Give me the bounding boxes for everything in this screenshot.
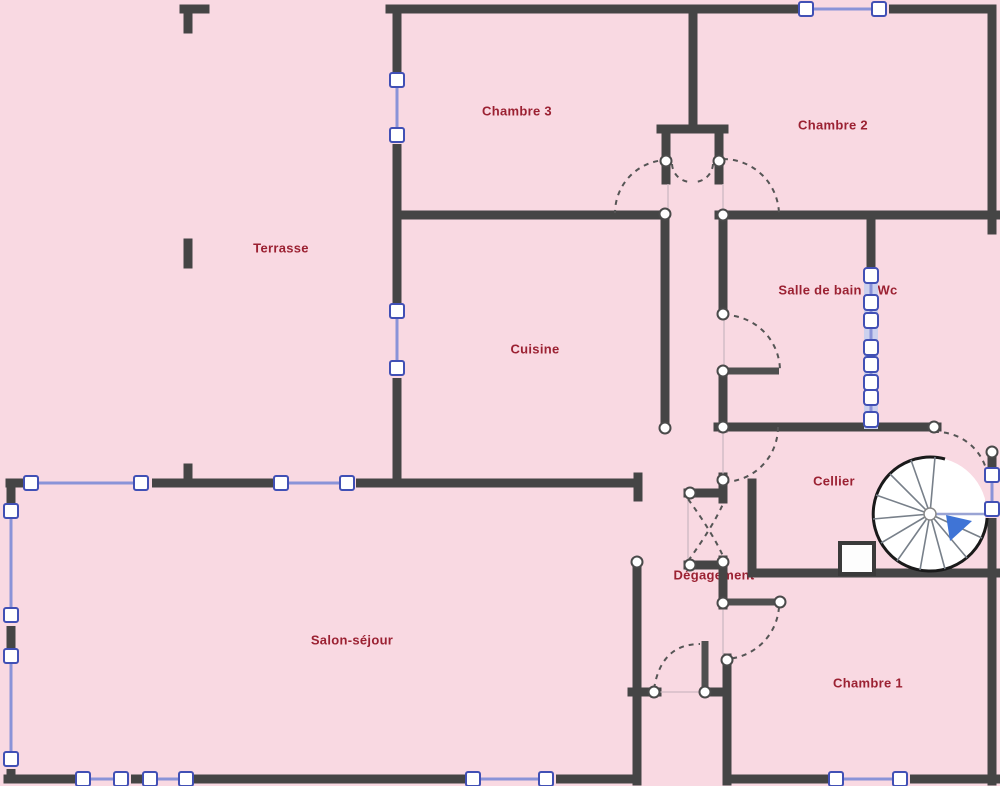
spiral-staircase-icon <box>873 457 989 571</box>
room-label-degagement: Dégagement <box>673 568 754 583</box>
room-label-cellier: Cellier <box>813 474 855 489</box>
door-arc <box>615 159 988 689</box>
door-leaf <box>705 371 780 692</box>
floor-plan: Terrasse Chambre 3 Chambre 2 Cuisine Sal… <box>0 0 1000 786</box>
room-label-chambre1: Chambre 1 <box>833 676 903 691</box>
room-label-terrasse: Terrasse <box>253 241 309 256</box>
room-label-salon-sejour: Salon-séjour <box>311 633 393 648</box>
room-label-chambre2: Chambre 2 <box>798 118 868 133</box>
stair-landing-box <box>840 543 874 574</box>
room-label-cuisine: Cuisine <box>510 342 559 357</box>
room-label-salle-de-bain: Salle de bain + Wc <box>778 283 897 298</box>
room-label-chambre3: Chambre 3 <box>482 104 552 119</box>
door-opening-line <box>656 184 724 692</box>
stair-direction-arrow-icon <box>946 515 972 541</box>
wall-node <box>632 156 998 698</box>
